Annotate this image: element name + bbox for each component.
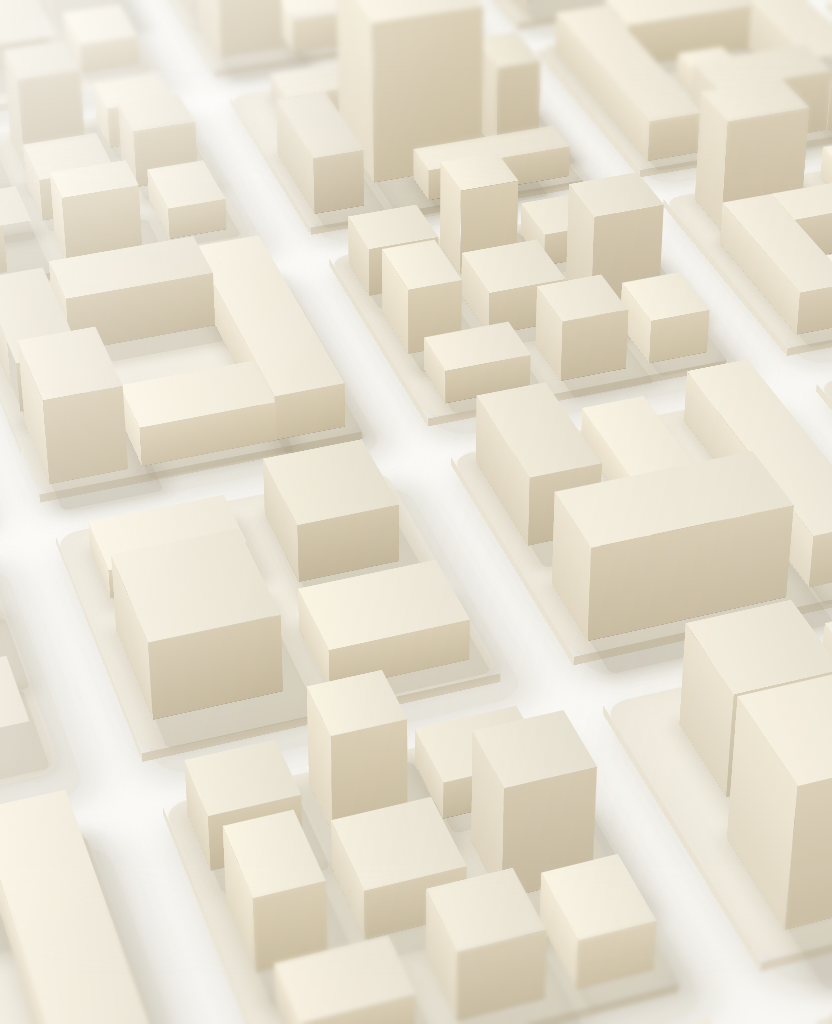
architectural-model-scene bbox=[0, 0, 832, 1024]
building-face-south bbox=[313, 150, 364, 214]
photo-frame bbox=[0, 0, 832, 1024]
building-face-west bbox=[195, 0, 222, 64]
building-face-south bbox=[43, 385, 129, 484]
building-face-south bbox=[219, 0, 283, 64]
model-ground bbox=[0, 0, 832, 1024]
city-block-tile bbox=[163, 722, 680, 1024]
city-block-tile bbox=[0, 824, 184, 1024]
city-block-tile bbox=[56, 470, 501, 753]
building-face-west bbox=[507, 0, 528, 14]
